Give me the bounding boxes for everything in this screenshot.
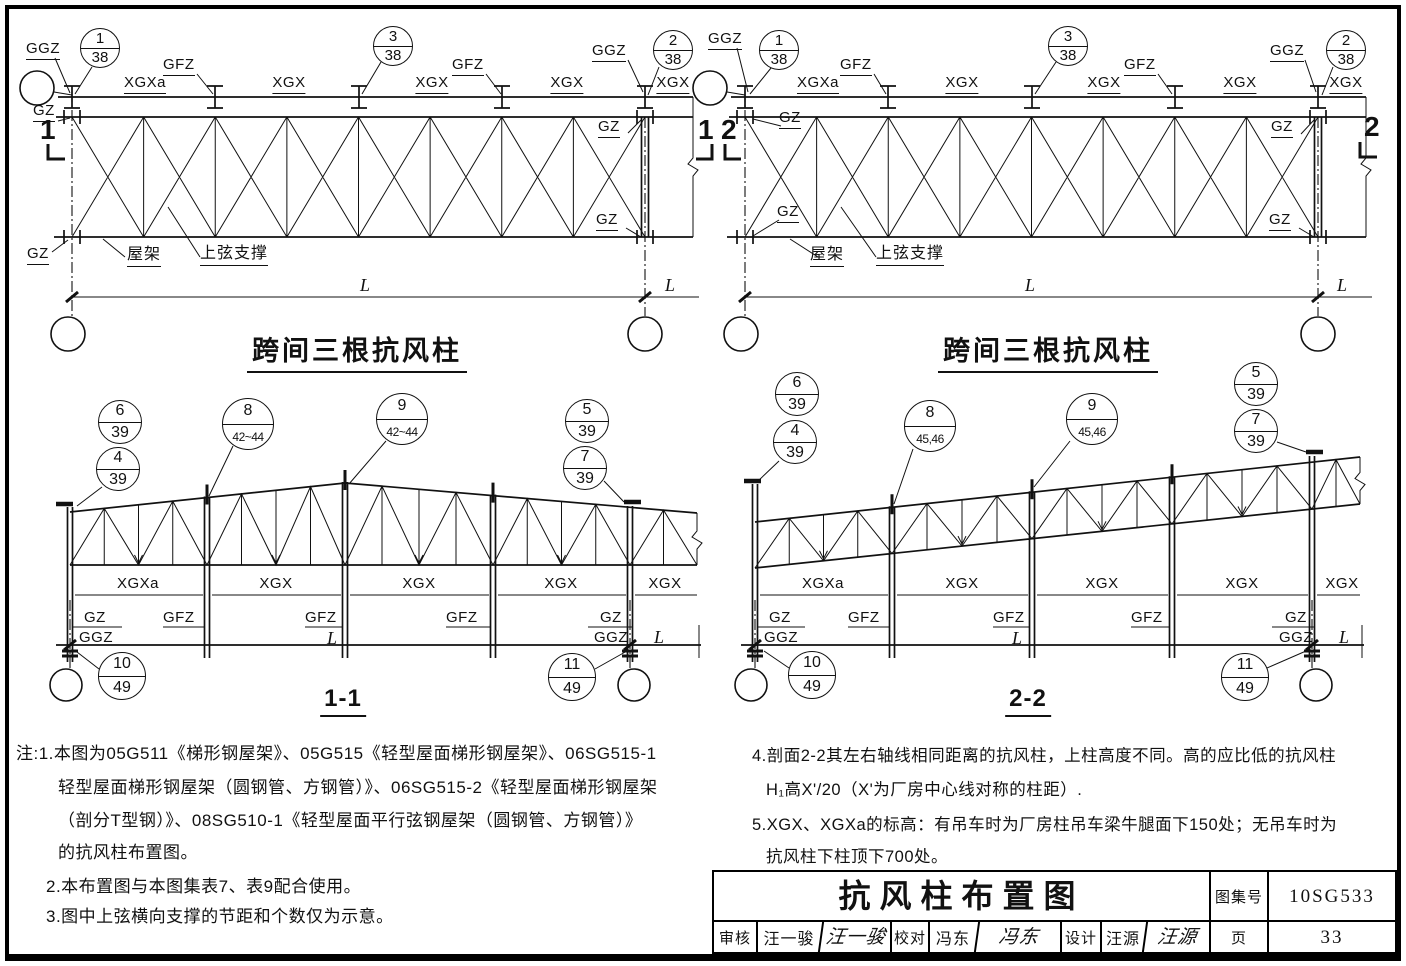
label-xgx: XGX [550, 75, 583, 94]
page-label: 页 [1209, 922, 1267, 952]
bubble-num: 8 [905, 401, 955, 427]
bubble-num: 2 [1327, 31, 1365, 51]
bubble-page: 49 [789, 676, 835, 699]
section-2-2-title: 2-2 [1005, 686, 1051, 717]
note-1-line-1: 注:1.本图为05G511《梯形钢屋架》、05G515《轻型屋面梯形钢屋架》、0… [16, 744, 657, 764]
bubble-page: 38 [654, 51, 692, 70]
label-gz: GZ [84, 610, 106, 626]
bubble-num: 6 [99, 401, 141, 423]
label-gz: GZ [598, 119, 620, 138]
label-xgx: XGX [544, 576, 577, 592]
label-xgxa: XGXa [797, 75, 839, 94]
bubble-page: 38 [760, 51, 798, 70]
label-ggz: GGZ [26, 41, 60, 60]
bubble-num: 10 [789, 652, 835, 676]
section-cut-mark-2: 2 [1364, 113, 1380, 141]
label-gz: GZ [1269, 212, 1291, 231]
bubble-num: 11 [1222, 654, 1268, 678]
note-4-line-2: H₁高X'/20（X'为厂房中心线对称的柱距）. [766, 781, 1082, 800]
detail-bubble-6-39: 639 [98, 400, 142, 444]
bubble-page: 38 [1327, 51, 1365, 70]
label-ggz: GGZ [592, 43, 626, 62]
label-gfz: GFZ [452, 57, 484, 76]
note-5-line-2: 抗风柱下柱顶下700处。 [766, 848, 948, 867]
label-gz: GZ [777, 204, 799, 223]
label-xgx: XGX [402, 576, 435, 592]
bubble-num: 7 [564, 447, 606, 469]
label-xgx: XGX [1223, 75, 1256, 94]
label-top-chord-brace: 上弦支撑 [876, 246, 944, 266]
dim-span-L: L [654, 628, 664, 646]
detail-bubble-3-38: 338 [1048, 26, 1088, 66]
detail-bubble-1-38: 138 [80, 28, 120, 68]
section-cut-mark-2: 2 [721, 116, 737, 144]
label-xgx: XGX [1085, 576, 1118, 592]
label-xgx: XGX [648, 576, 681, 592]
dim-span-L: L [1012, 629, 1022, 647]
bubble-num: 5 [1235, 363, 1277, 385]
drawing-title: 抗风柱布置图 [714, 872, 1209, 920]
review-label: 审核 [714, 922, 756, 952]
label-gfz: GFZ [1124, 57, 1156, 76]
detail-bubble-7-39: 739 [1234, 409, 1278, 453]
atlas-no-value: 10SG533 [1267, 872, 1395, 920]
section-cut-mark-1: 1 [698, 116, 714, 144]
detail-bubble-9-4244: 942~44 [376, 393, 428, 445]
bubble-num: 2 [654, 31, 692, 51]
detail-bubble-11-49: 1149 [1221, 653, 1269, 701]
label-ggz: GGZ [1279, 630, 1313, 646]
bubble-page: 39 [1235, 432, 1277, 453]
page-number: 33 [1267, 922, 1395, 952]
label-gfz: GFZ [446, 610, 478, 626]
note-2: 2.本布置图与本图集表7、表9配合使用。 [46, 877, 361, 897]
design-label: 设计 [1060, 922, 1100, 952]
note-1-line-3: （剖分T型钢）》、08SG510-1《轻型屋面平行弦钢屋架（圆钢管、方钢管）》 [58, 811, 642, 831]
label-gfz: GFZ [993, 610, 1025, 626]
bubble-page: 45,46 [905, 427, 955, 452]
label-xgx: XGX [1325, 576, 1358, 592]
label-xgx: XGX [945, 576, 978, 592]
proof-label: 校对 [890, 922, 928, 952]
bubble-num: 8 [223, 399, 273, 425]
detail-bubble-8-4244: 842~44 [222, 398, 274, 450]
drawing-sheet: GGZ GFZ GFZ GGZ XGXa XGX XGX XGX XGX GZ … [0, 0, 1406, 966]
label-ggz: GGZ [79, 630, 113, 646]
dim-span-L: L [327, 629, 337, 647]
label-gz: GZ [769, 610, 791, 626]
title-block: 抗风柱布置图 图集号 10SG533 审核 汪一骏 汪一骏 校对 冯东 冯东 设… [712, 870, 1397, 954]
label-gfz: GFZ [848, 610, 880, 626]
label-gfz: GFZ [1131, 610, 1163, 626]
label-ggz: GGZ [764, 630, 798, 646]
bubble-page: 39 [1235, 385, 1277, 406]
detail-bubble-10-49: 1049 [788, 651, 836, 699]
bubble-num: 9 [377, 394, 427, 420]
label-gfz: GFZ [840, 57, 872, 76]
label-roof-truss: 屋架 [810, 247, 844, 267]
note-1-line-2: 轻型屋面梯形钢屋架（圆钢管、方钢管）》、06SG515-2《轻型屋面梯形钢屋架 [58, 778, 657, 798]
detail-bubble-2-38: 238 [653, 30, 693, 70]
bubble-page: 42~44 [377, 420, 427, 445]
detail-bubble-2-38: 238 [1326, 30, 1366, 70]
label-top-chord-brace: 上弦支撑 [200, 246, 268, 266]
label-xgx: XGX [1087, 75, 1120, 94]
proof-signature: 冯东 [974, 922, 1062, 952]
bubble-num: 6 [776, 373, 818, 395]
detail-bubble-3-38: 338 [373, 26, 413, 66]
note-1-line-4: 的抗风柱布置图。 [58, 843, 198, 863]
label-ggz: GGZ [708, 31, 742, 50]
bubble-num: 9 [1067, 394, 1117, 420]
note-5-line-1: 5.XGX、XGXa的标高：有吊车时为厂房柱吊车梁牛腿面下150处；无吊车时为 [752, 816, 1337, 835]
bubble-page: 39 [566, 422, 608, 443]
bubble-num: 1 [81, 29, 119, 49]
detail-bubble-7-39: 739 [563, 446, 607, 490]
detail-bubble-6-39: 639 [775, 372, 819, 416]
dim-span-L: L [1337, 276, 1347, 294]
bubble-page: 42~44 [223, 425, 273, 450]
label-ggz: GGZ [1270, 43, 1304, 62]
note-3: 3.图中上弦横向支撑的节距和个数仅为示意。 [46, 907, 394, 927]
label-gz: GZ [779, 110, 801, 129]
bubble-page: 38 [81, 49, 119, 68]
detail-bubble-8-4546: 845,46 [904, 400, 956, 452]
label-gz: GZ [596, 212, 618, 231]
detail-bubble-5-39: 539 [565, 399, 609, 443]
bubble-page: 39 [97, 470, 139, 491]
label-roof-truss: 屋架 [127, 247, 161, 267]
detail-bubble-11-49: 1149 [548, 653, 596, 701]
label-xgx: XGX [272, 75, 305, 94]
dim-span-L: L [1025, 276, 1035, 294]
dim-span-L: L [1339, 628, 1349, 646]
label-xgx: XGX [259, 576, 292, 592]
label-xgx: XGX [1329, 75, 1362, 94]
label-ggz: GGZ [594, 630, 628, 646]
plan-right-title: 跨间三根抗风柱 [938, 336, 1158, 373]
detail-bubble-10-49: 1049 [98, 652, 146, 700]
label-gfz: GFZ [305, 610, 337, 626]
label-gz: GZ [1271, 119, 1293, 138]
bubble-num: 3 [374, 27, 412, 47]
detail-bubble-1-38: 138 [759, 30, 799, 70]
label-gz: GZ [1285, 610, 1307, 626]
bubble-page: 49 [99, 677, 145, 700]
detail-bubble-5-39: 539 [1234, 362, 1278, 406]
review-signature: 汪一骏 [818, 922, 892, 952]
bubble-num: 3 [1049, 27, 1087, 47]
label-xgxa: XGXa [124, 75, 166, 94]
title-block-row-2: 审核 汪一骏 汪一骏 校对 冯东 冯东 设计 汪源 汪源 页 33 [714, 922, 1395, 952]
bubble-page: 49 [1222, 678, 1268, 701]
bubble-page: 39 [564, 469, 606, 490]
section-1-1-title: 1-1 [320, 686, 366, 717]
label-gz: GZ [27, 246, 49, 265]
dim-span-L: L [360, 276, 370, 294]
bubble-num: 4 [97, 448, 139, 470]
label-xgx: XGX [656, 75, 689, 94]
bubble-num: 1 [760, 31, 798, 51]
atlas-no-label: 图集号 [1209, 872, 1267, 920]
bubble-num: 5 [566, 400, 608, 422]
bubble-num: 4 [774, 421, 816, 443]
bubble-page: 39 [774, 443, 816, 464]
proof-name: 冯东 [928, 922, 976, 952]
label-xgxa: XGXa [117, 576, 159, 592]
dim-span-L: L [665, 276, 675, 294]
review-name: 汪一骏 [756, 922, 820, 952]
note-4-line-1: 4.剖面2-2其左右轴线相同距离的抗风柱，上柱高度不同。高的应比低的抗风柱 [752, 747, 1336, 766]
bubble-num: 7 [1235, 410, 1277, 432]
plan-left-title: 跨间三根抗风柱 [247, 336, 467, 373]
bubble-page: 49 [549, 678, 595, 701]
bubble-page: 45,46 [1067, 420, 1117, 445]
bubble-num: 10 [99, 653, 145, 677]
design-name: 汪源 [1100, 922, 1144, 952]
label-gz: GZ [600, 610, 622, 626]
bubble-page: 39 [776, 395, 818, 416]
label-xgx: XGX [415, 75, 448, 94]
section-cut-mark-1: 1 [40, 116, 56, 144]
design-signature: 汪源 [1142, 922, 1211, 952]
detail-bubble-4-39: 439 [96, 447, 140, 491]
bubble-num: 11 [549, 654, 595, 678]
label-gfz: GFZ [163, 57, 195, 76]
detail-bubble-4-39: 439 [773, 420, 817, 464]
label-xgx: XGX [1225, 576, 1258, 592]
label-gfz: GFZ [163, 610, 195, 626]
label-xgx: XGX [945, 75, 978, 94]
bubble-page: 38 [374, 47, 412, 66]
label-xgxa: XGXa [802, 576, 844, 592]
bubble-page: 39 [99, 423, 141, 444]
detail-bubble-9-4546: 945,46 [1066, 393, 1118, 445]
bubble-page: 38 [1049, 47, 1087, 66]
title-block-row-1: 抗风柱布置图 图集号 10SG533 [714, 872, 1395, 922]
